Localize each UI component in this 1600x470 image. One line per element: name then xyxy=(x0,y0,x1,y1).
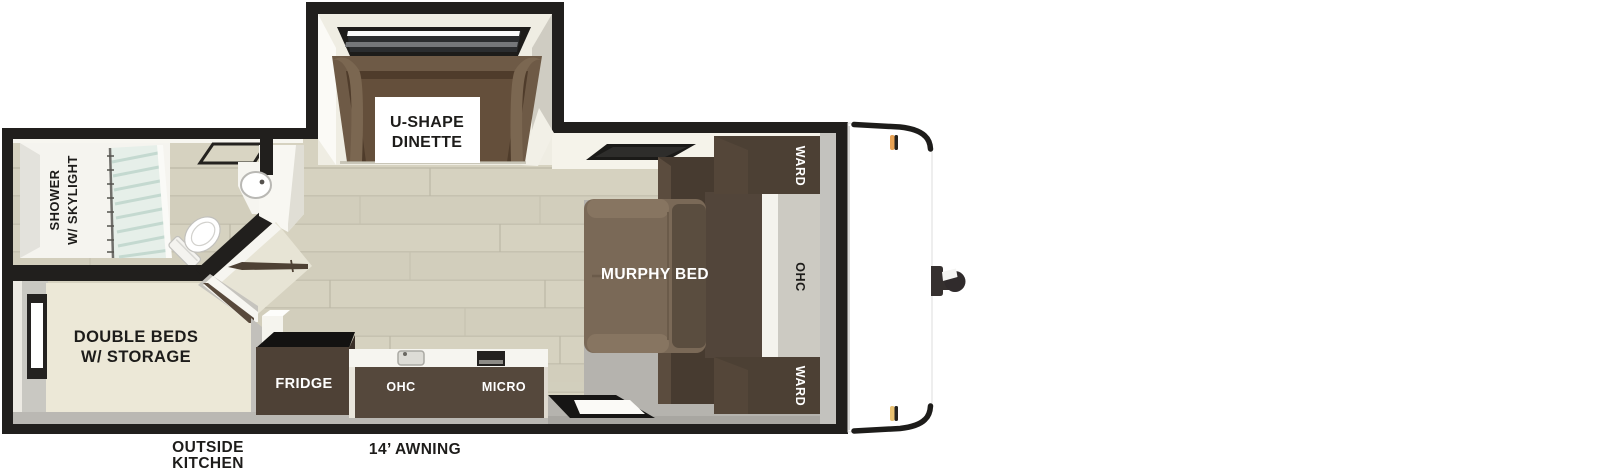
svg-text:FRIDGE: FRIDGE xyxy=(275,376,332,392)
svg-text:DOUBLE BEDS: DOUBLE BEDS xyxy=(74,328,199,346)
svg-text:W/ STORAGE: W/ STORAGE xyxy=(81,348,191,366)
svg-text:DINETTE: DINETTE xyxy=(392,134,463,151)
svg-text:MICRO: MICRO xyxy=(482,380,526,394)
svg-text:OHC: OHC xyxy=(793,262,807,292)
svg-text:KITCHEN: KITCHEN xyxy=(172,455,244,470)
svg-text:MURPHY BED: MURPHY BED xyxy=(601,266,709,283)
svg-text:14’ AWNING: 14’ AWNING xyxy=(369,441,461,458)
svg-text:SHOWER: SHOWER xyxy=(47,169,62,230)
svg-text:U-SHAPE: U-SHAPE xyxy=(390,114,464,131)
svg-text:WARD: WARD xyxy=(793,366,807,407)
svg-text:OUTSIDE: OUTSIDE xyxy=(172,439,244,456)
svg-text:WARD: WARD xyxy=(793,146,807,187)
svg-text:OHC: OHC xyxy=(386,380,415,394)
svg-text:W/ SKYLIGHT: W/ SKYLIGHT xyxy=(65,155,80,245)
